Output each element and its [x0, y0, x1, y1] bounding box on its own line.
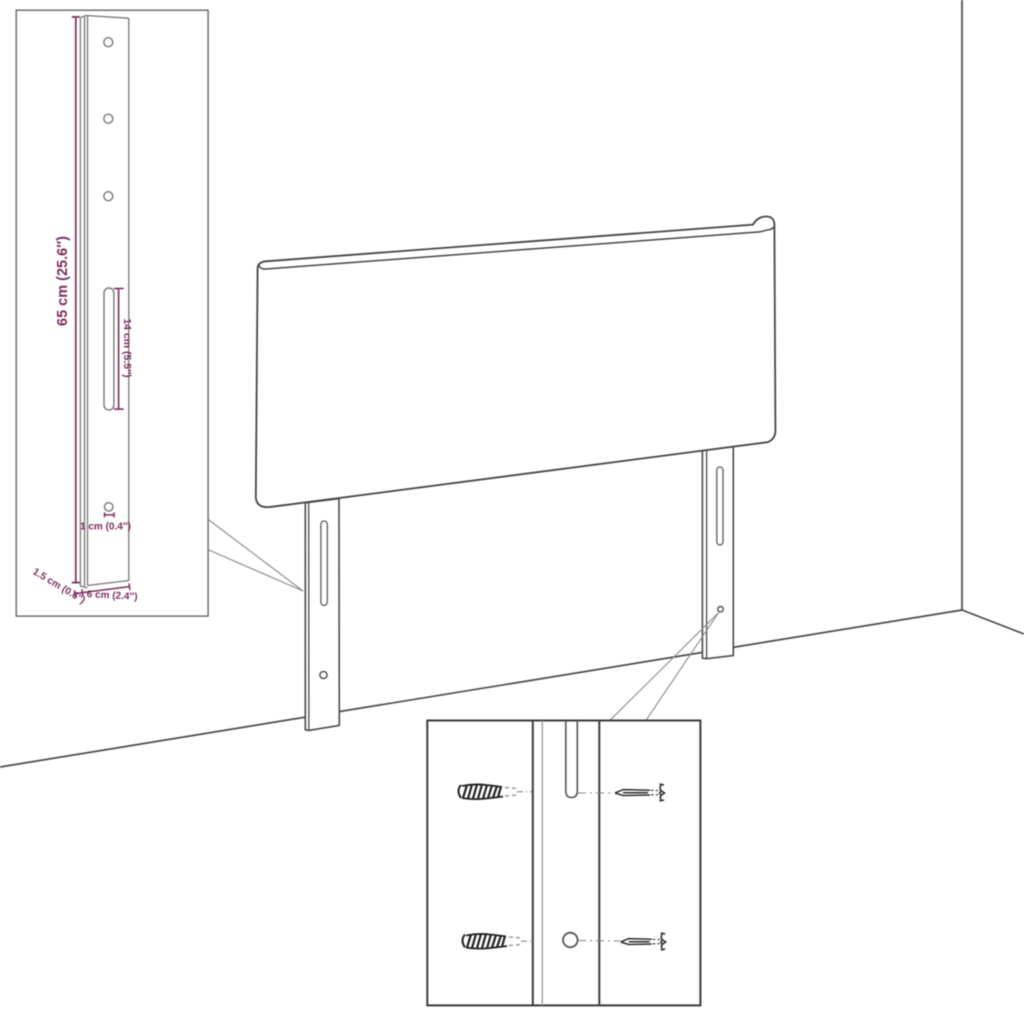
svg-text:1 cm (0.4″): 1 cm (0.4″) [80, 522, 131, 533]
svg-text:14 cm (5.5″): 14 cm (5.5″) [121, 318, 133, 377]
svg-text:65 cm (25.6″): 65 cm (25.6″) [55, 236, 71, 326]
